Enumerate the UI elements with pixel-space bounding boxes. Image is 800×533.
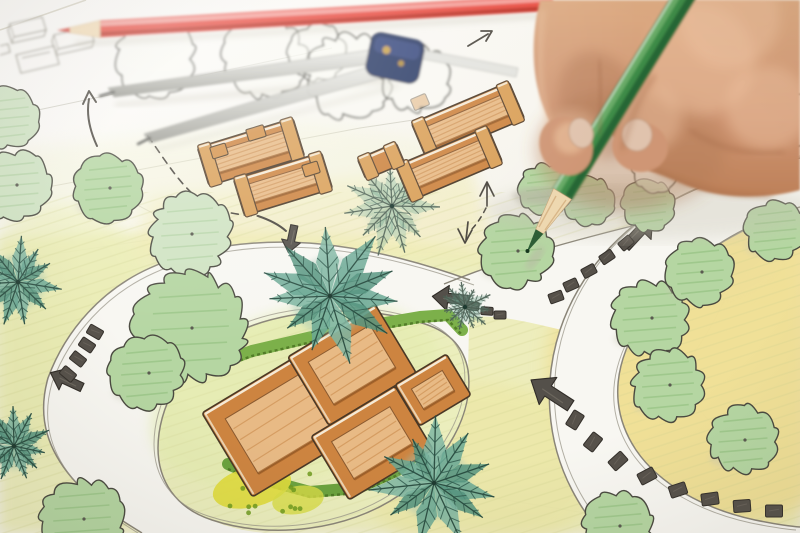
flower-dot <box>307 472 312 477</box>
stepping-stone <box>701 492 720 506</box>
stepping-stone <box>494 311 506 319</box>
tree-center-dot <box>108 186 111 189</box>
flower-dot <box>240 486 245 491</box>
tree-center-dot <box>15 183 18 186</box>
tree-center-dot <box>82 517 85 520</box>
stepping-stone-shape <box>494 311 506 319</box>
conifer-center <box>432 481 436 485</box>
flower-dot <box>228 504 233 509</box>
tree-center-dot <box>650 316 653 319</box>
stepping-stone <box>766 505 783 517</box>
tree-center-dot <box>743 438 746 441</box>
tree-center-dot <box>618 524 621 527</box>
tree-center-dot <box>190 232 193 235</box>
conifer-center <box>328 294 332 298</box>
flower-dot <box>253 504 258 509</box>
stepping-stone <box>733 499 751 512</box>
photo-stage <box>0 0 800 533</box>
landscape-plan-photo <box>0 0 800 533</box>
conifer-center <box>12 444 16 448</box>
flower-dot <box>288 504 293 509</box>
tree-center-dot <box>700 270 703 273</box>
flower-dot <box>293 506 298 511</box>
pencil-lead-point <box>526 249 530 253</box>
tree-center-dot <box>190 326 193 329</box>
flower-dot <box>280 509 285 514</box>
stepping-stone-shape <box>701 492 720 506</box>
tree-center-dot <box>147 371 150 374</box>
conifer-center <box>390 204 394 208</box>
conifer-center <box>16 280 20 284</box>
stepping-stone-shape <box>733 499 751 512</box>
flower-dot <box>289 485 294 490</box>
flower-dot <box>246 510 251 515</box>
conifer-center <box>463 305 467 309</box>
tree-center-dot <box>516 249 519 252</box>
flower-dot <box>246 504 251 509</box>
stepping-stone-shape <box>766 505 783 517</box>
tree-center-dot <box>668 383 671 386</box>
flower-dot <box>298 506 303 511</box>
hand-holding-pencil <box>530 0 800 210</box>
